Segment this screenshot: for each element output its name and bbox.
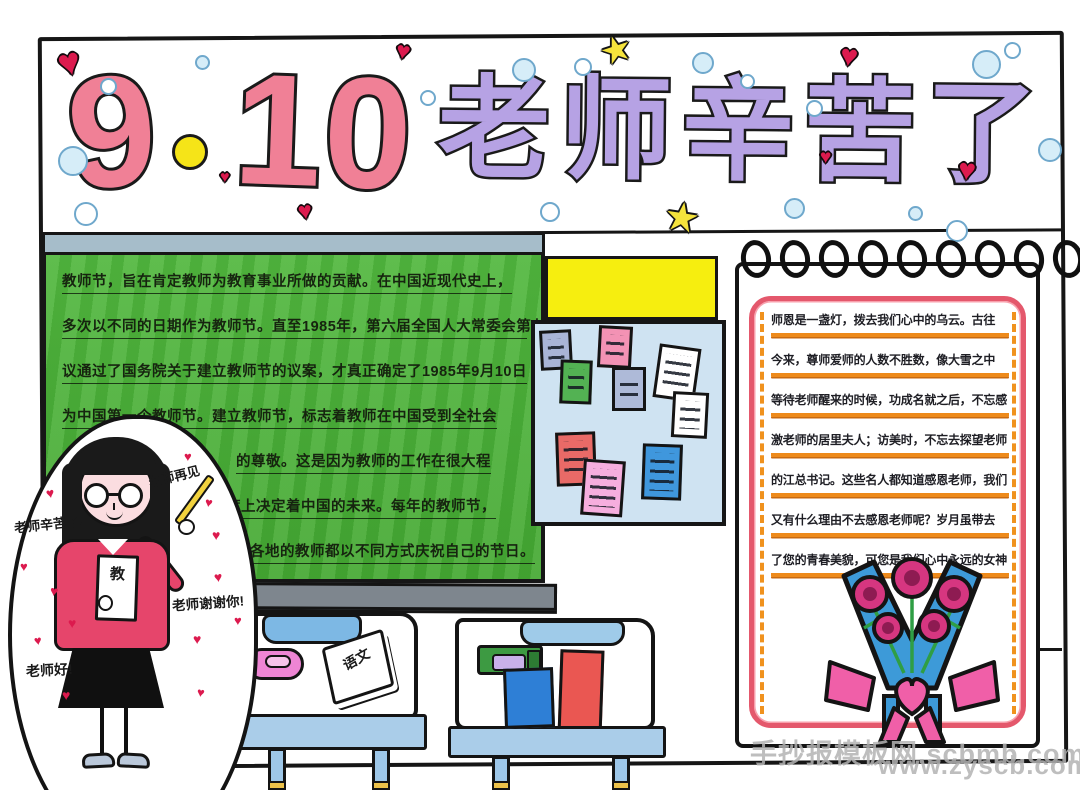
title-date-10: 10 <box>231 50 416 214</box>
desk-foot <box>372 781 390 790</box>
chalkboard-line: 度上决定着中国的未来。每年的教师节， <box>226 495 496 519</box>
teacher-hand <box>98 595 113 611</box>
desk-foot <box>268 781 286 790</box>
sticky-note <box>597 325 633 369</box>
bubble-icon <box>692 52 714 74</box>
notebook-line: 等待老师醒来的时候，功成名就之后，不忘感 <box>771 391 1009 417</box>
chalkboard-line: 的尊敬。这是因为教师的工作在很大程 <box>236 450 491 474</box>
spiral-ring-icon <box>778 238 813 280</box>
sticky-note <box>671 391 709 439</box>
desk-leg <box>268 748 286 784</box>
watermark-site-en: www.zyscb.com <box>878 750 1080 781</box>
textbook-label: 语文 <box>327 635 386 682</box>
teacher-shoe <box>117 752 151 769</box>
teacher-shoe <box>82 752 116 769</box>
greeting-label: 老师好! <box>26 659 74 681</box>
bubble-icon <box>908 206 923 221</box>
teacher-nose <box>113 503 115 510</box>
bubble-icon <box>806 100 823 117</box>
sticky-note <box>559 359 593 404</box>
teachers-day-poster: 9 10 老师辛苦了 ♥ ♥ ♥ ♥ ♥ ♥ ♥ ★ ★ 教师节，旨在肯定教师为… <box>0 0 1080 790</box>
heart-icon: ♥ <box>62 688 70 702</box>
spiral-ring-icon <box>856 238 891 280</box>
note-squiggle <box>568 369 585 396</box>
bubble-icon <box>58 146 88 176</box>
desk-left-apron <box>222 714 427 750</box>
bubble-icon <box>420 90 436 106</box>
notebook-line: 激老师的居里夫人；访美时，不忘去探望老师 <box>771 431 1009 457</box>
bubble-icon <box>1038 138 1062 162</box>
teacher-leg <box>124 707 128 757</box>
spiral-ring-icon <box>973 238 1008 280</box>
red-book <box>558 649 605 736</box>
bubble-icon <box>512 58 536 82</box>
heart-icon: ♥ <box>212 528 220 542</box>
desk-right-slot <box>520 620 625 646</box>
sticky-note <box>641 443 683 500</box>
heart-icon: ♥ <box>184 450 192 463</box>
chalk-tray <box>225 582 557 611</box>
blue-book <box>503 667 555 729</box>
spiral-ring-icon <box>934 238 969 280</box>
note-squiggle <box>649 453 674 492</box>
bubble-icon <box>195 55 210 70</box>
note-squiggle <box>620 376 638 402</box>
chalkboard-line: 中国各地的教师都以不同方式庆祝自己的节日。 <box>220 540 535 564</box>
star-icon: ★ <box>661 195 703 240</box>
flower-bouquet <box>812 548 1012 746</box>
chalkboard-line: 教师节，旨在肯定教师为教育事业所做的贡献。在中国近现代史上， <box>62 270 512 294</box>
bubble-icon <box>540 202 560 222</box>
desk-leg <box>492 756 510 784</box>
spiral-ring-icon <box>895 238 930 280</box>
bubble-icon <box>1004 42 1021 59</box>
heart-icon: ♥ <box>213 570 223 585</box>
spiral-ring-icon <box>817 238 852 280</box>
sticky-note <box>580 459 626 518</box>
desk-right-apron <box>448 726 666 758</box>
chalkboard-top-frame <box>42 232 545 255</box>
teacher-book: 教 <box>95 554 139 621</box>
heart-icon: ♥ <box>234 614 242 627</box>
glasses-icon <box>118 483 143 508</box>
glasses-icon <box>84 483 109 508</box>
chalkboard-line: 多次以不同的日期作为教师节。直至1985年，第六届全国人大常委会第九次会 <box>62 315 527 339</box>
note-squiggle <box>605 335 624 360</box>
notebook-line: 今来，尊师爱师的人数不胜数，像大雪之中 <box>771 351 1009 377</box>
desk-foot <box>612 781 630 790</box>
chalkboard-line: 议通过了国务院关于建立教师节的议案，才真正确定了1985年9月10日 <box>62 360 527 384</box>
teacher-hand <box>178 519 195 535</box>
teacher-skirt <box>58 648 164 708</box>
bubble-icon <box>574 58 592 76</box>
desk-leg <box>612 756 630 784</box>
teacher-book-label: 教 <box>99 562 136 584</box>
sticky-note <box>612 367 646 411</box>
heart-icon: ♥ <box>33 634 42 648</box>
heart-icon: ♥ <box>68 616 76 630</box>
desk-leg <box>372 748 390 784</box>
glasses-bridge <box>107 493 120 496</box>
heart-icon: ♥ <box>220 170 230 186</box>
note-squiggle <box>662 353 693 392</box>
spiral-ring-icon <box>739 238 774 280</box>
desk-foot <box>492 781 510 790</box>
notebook-line: 师恩是一盏灯，拨去我们心中的乌云。古往 <box>771 311 1009 337</box>
heart-icon: ♥ <box>193 632 201 646</box>
heart-icon: ♥ <box>956 155 977 187</box>
teacher-leg <box>100 707 104 757</box>
bulletin-banner <box>545 256 718 320</box>
heart-icon: ♥ <box>196 686 205 700</box>
note-squiggle <box>679 400 700 429</box>
title-text: 老师辛苦了 <box>437 73 1048 190</box>
note-squiggle <box>547 339 564 362</box>
bubble-icon <box>946 220 968 242</box>
bubble-icon <box>784 198 805 219</box>
notebook-line: 的江总书记。这些名人都知道感恩老师，我们 <box>771 471 1009 497</box>
bubble-icon <box>740 74 755 89</box>
heart-icon: ♥ <box>820 148 831 167</box>
spiral-binding <box>741 240 1041 274</box>
teacher-bangs <box>76 441 156 475</box>
note-squiggle <box>589 468 618 508</box>
heart-icon: ♥ <box>20 560 28 573</box>
bubble-icon <box>972 50 1001 79</box>
bubble-icon <box>100 78 117 95</box>
yellow-dot-icon <box>172 134 208 170</box>
bubble-icon <box>74 202 98 226</box>
notebook-line: 又有什么理由不去感恩老师呢？岁月虽带去 <box>771 511 1009 537</box>
